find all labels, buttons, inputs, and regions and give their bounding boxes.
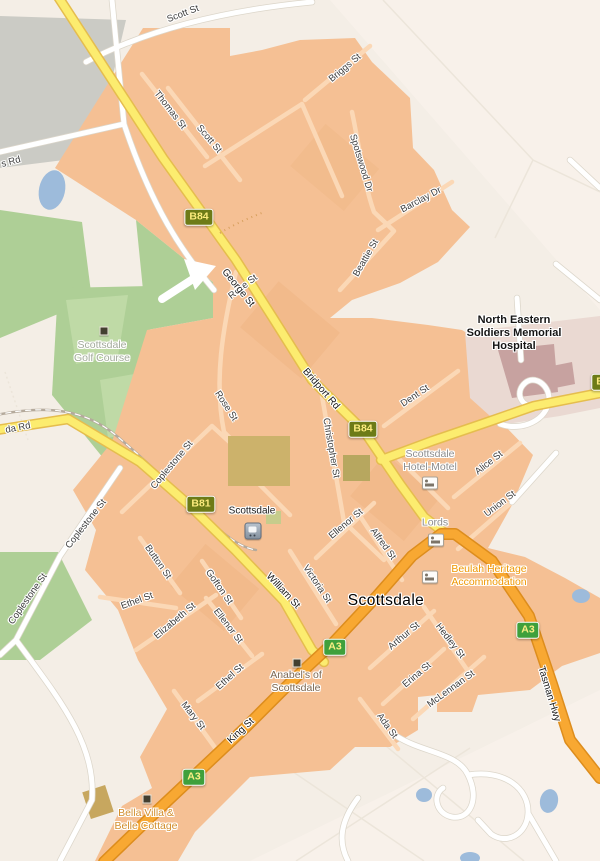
street-label: Briggs St [327, 51, 364, 84]
poi-label[interactable]: Beulah HeritageAccommodation [451, 563, 526, 589]
route-shield-b8: B8 [591, 374, 600, 391]
poi-label[interactable]: Lords [422, 516, 448, 529]
street-label: Arthur St [386, 620, 422, 653]
poi-label-line: Beulah Heritage [451, 563, 526, 576]
road-name-label: Bridport Rd [300, 366, 341, 411]
poi-label-line: Golf Course [74, 352, 130, 365]
road-name-label: Tasman Hwy [535, 665, 562, 723]
street-label: Elizabeth St [152, 600, 198, 641]
poi-marker-icon[interactable] [143, 795, 152, 804]
town-label: Scottsdale [348, 592, 424, 610]
route-shield-a3: A3 [323, 639, 346, 656]
poi-label[interactable]: ScottsdaleGolf Course [74, 339, 130, 365]
street-label: Rose St [212, 389, 240, 423]
poi-marker-icon[interactable] [293, 659, 302, 668]
street-label: Dent St [399, 383, 431, 410]
street-label: Christopher St [320, 417, 341, 479]
poi-label-line: Scottsdale [270, 682, 322, 695]
street-label: Ellenor St [327, 507, 366, 542]
poi-label-line: Belle Cottage [114, 820, 177, 833]
street-label: Beattie St [351, 237, 381, 278]
street-label: Ethel St [119, 590, 154, 612]
street-label: da Rd [5, 420, 32, 436]
street-label: Scott St [194, 123, 224, 156]
street-label: Scott St [166, 3, 201, 25]
street-label: Gofton St [203, 567, 235, 606]
street-label: Coplestone St [149, 439, 196, 492]
poi-label-line: Anabel's of [270, 669, 322, 682]
street-label: Union St [482, 489, 518, 520]
route-shield-b81: B81 [186, 496, 215, 513]
street-label: Ellenor St [211, 606, 245, 645]
road-name-label: King St [225, 716, 256, 746]
poi-marker-icon[interactable] [100, 327, 109, 336]
route-shield-b84: B84 [184, 209, 213, 226]
poi-label[interactable]: ScottsdaleHotel-Motel [403, 448, 457, 474]
station-label: Scottsdale [229, 506, 276, 517]
street-label: Alfred St [368, 526, 398, 562]
street-label: Erina St [401, 660, 434, 690]
poi-label-line: Hotel-Motel [403, 461, 457, 474]
map-viewport[interactable]: Scott StThomas StScott StBriggs StSpotsw… [0, 0, 600, 861]
poi-label-line: Accommodation [451, 576, 526, 589]
lodging-bed-icon[interactable] [422, 477, 438, 490]
poi-label[interactable]: Anabel's ofScottsdale [270, 669, 322, 695]
poi-label-line: Hospital [467, 341, 562, 354]
street-label: Ada St [374, 711, 400, 741]
street-label: Hedley St [433, 621, 467, 660]
street-label: Coplestone St [6, 571, 49, 626]
poi-label-line: Soldiers Memorial [467, 327, 562, 340]
street-label: Ethel St [214, 662, 246, 692]
route-shield-b84: B84 [348, 421, 377, 438]
route-shield-a3: A3 [182, 769, 205, 786]
poi-label-line: Bella Villa & [114, 807, 177, 820]
poi-label-line: Scottsdale [403, 448, 457, 461]
poi-label[interactable]: North EasternSoldiers MemorialHospital [467, 314, 562, 354]
poi-label[interactable]: Bella Villa &Belle Cottage [114, 807, 177, 833]
road-name-label: William St [264, 571, 302, 611]
train-station-icon[interactable] [245, 523, 262, 540]
street-label: Thomas St [152, 89, 189, 132]
label-layer: Scott StThomas StScott StBriggs StSpotsw… [0, 0, 600, 861]
route-shield-a3: A3 [516, 622, 539, 639]
lodging-bed-icon[interactable] [428, 534, 444, 547]
poi-label-line: North Eastern [467, 314, 562, 327]
street-label: Victoria St [300, 563, 333, 605]
street-label: Mary St [179, 700, 208, 733]
street-label: McLennan St [425, 668, 477, 710]
lodging-bed-icon[interactable] [422, 571, 438, 584]
street-label: Button St [142, 543, 173, 581]
street-label: Barclay Dr [399, 185, 443, 216]
street-label: s Rd [0, 154, 22, 170]
street-label: Spotswood Dr [347, 133, 375, 193]
poi-label-line: Lords [422, 516, 448, 529]
street-label: Alice St [473, 449, 505, 478]
street-label: Coplestone St [63, 497, 108, 551]
poi-label-line: Scottsdale [74, 339, 130, 352]
